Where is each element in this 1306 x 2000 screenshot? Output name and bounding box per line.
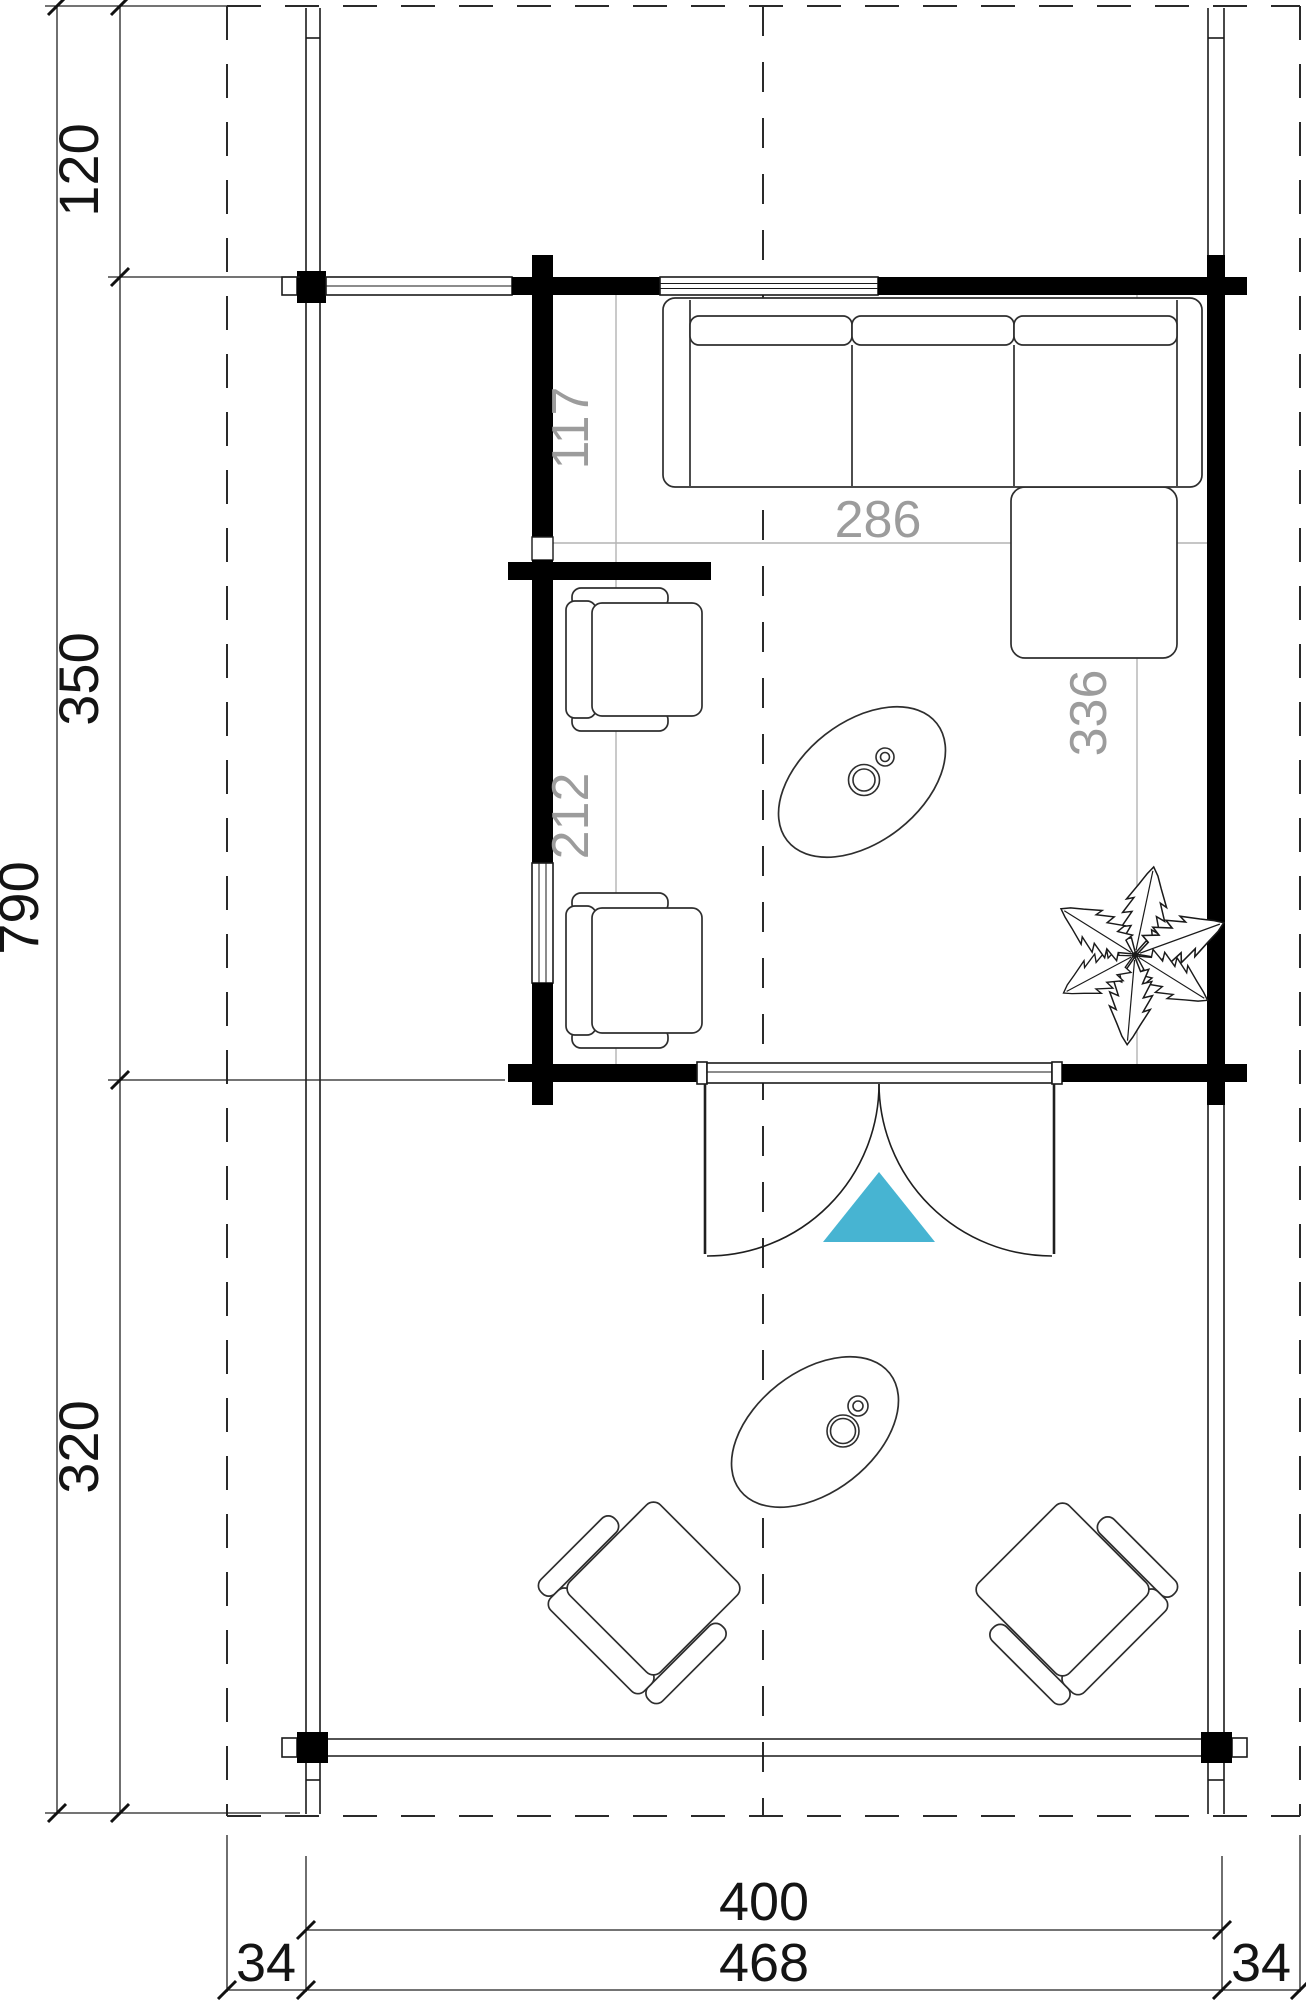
dim-room-depth: 336 — [1060, 670, 1118, 757]
window-left — [532, 863, 553, 983]
corner-post-top-left — [297, 271, 326, 303]
sofa-chaise — [1011, 487, 1177, 658]
floor-plan-canvas: 117 212 286 336 790 120 350 320 — [0, 0, 1306, 2000]
dim-overall-depth: 790 — [0, 861, 50, 954]
dim-alcove-depth: 117 — [542, 387, 600, 470]
deck-front-beam — [328, 1739, 1201, 1756]
dim-margin-left: 34 — [236, 1933, 296, 1993]
dim-overall-width: 468 — [719, 1933, 809, 1993]
terrace-chair-left — [530, 1482, 759, 1711]
armchair-2 — [566, 893, 702, 1048]
door-threshold — [707, 1063, 1052, 1083]
wall-right — [1207, 255, 1225, 1105]
door-jamb-right — [1052, 1062, 1062, 1084]
wall-partition — [508, 562, 711, 580]
sofa — [663, 298, 1202, 658]
corner-post-bottom-left — [297, 1732, 328, 1763]
dim-room-width: 286 — [835, 491, 922, 549]
bottom-dimension-lines: 400 34 468 34 — [218, 1835, 1306, 1999]
door-jamb-left — [697, 1062, 707, 1084]
wall-left — [532, 255, 553, 1105]
coffee-table-living — [750, 676, 974, 888]
dim-lower-wall: 212 — [542, 773, 600, 860]
dim-margin-right: 34 — [1231, 1933, 1291, 1993]
dim-cabin-depth: 350 — [47, 632, 110, 725]
dim-terrace-depth: 320 — [47, 1400, 110, 1493]
terrace-chair-right — [956, 1483, 1185, 1712]
dim-cabin-width: 400 — [719, 1872, 809, 1932]
plant-icon — [1050, 863, 1232, 1047]
left-dimension-chain: 790 120 350 320 — [0, 0, 505, 1822]
armchair-1 — [566, 588, 702, 731]
corner-post-bottom-right — [1201, 1732, 1232, 1763]
wall-top — [326, 277, 1247, 295]
wall-bottom — [508, 1062, 1247, 1084]
entrance-marker-triangle-icon — [823, 1172, 935, 1242]
terrace-table — [703, 1326, 927, 1538]
dim-roof-overhang-top: 120 — [47, 123, 110, 216]
window-top — [660, 277, 878, 295]
